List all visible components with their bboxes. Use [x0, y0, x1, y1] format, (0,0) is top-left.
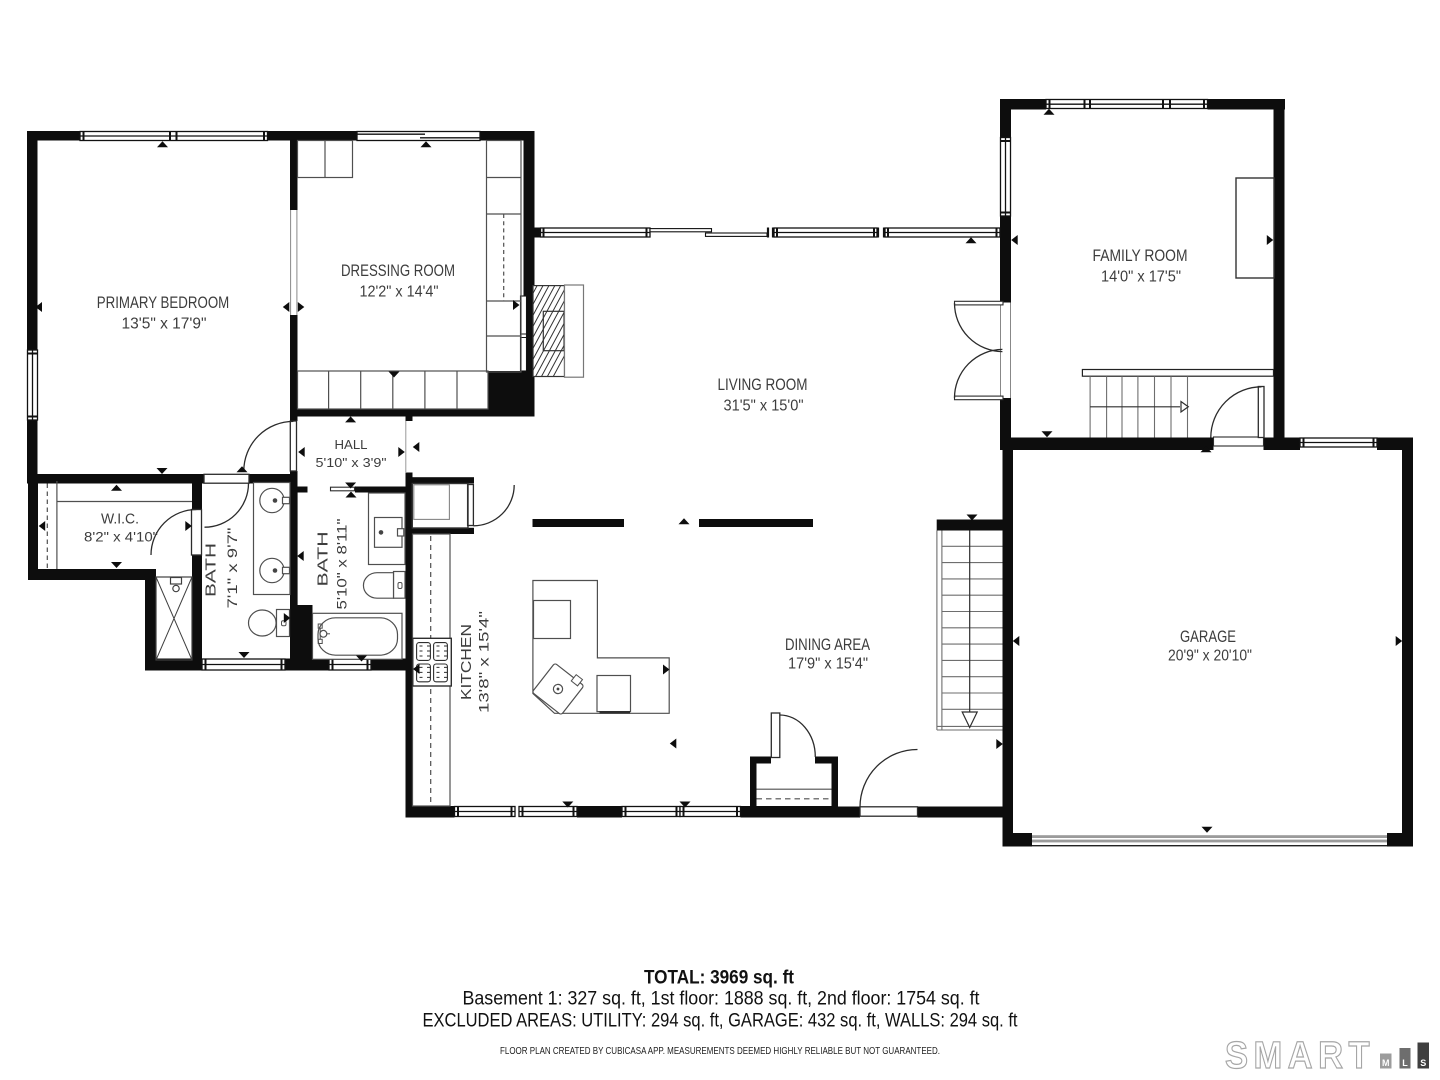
- svg-text:7'1" x 9'7": 7'1" x 9'7": [225, 527, 240, 608]
- svg-text:BATH: BATH: [204, 543, 220, 597]
- svg-text:31'5" x 15'0": 31'5" x 15'0": [724, 398, 804, 415]
- svg-text:Basement 1: 327 sq. ft, 1st fl: Basement 1: 327 sq. ft, 1st floor: 1888 …: [463, 989, 981, 1010]
- svg-text:FAMILY ROOM: FAMILY ROOM: [1093, 247, 1188, 265]
- svg-text:LIVING ROOM: LIVING ROOM: [718, 376, 808, 394]
- svg-text:17'9" x 15'4": 17'9" x 15'4": [788, 656, 868, 673]
- svg-text:8'2" x 4'10": 8'2" x 4'10": [84, 530, 158, 545]
- svg-text:M: M: [1382, 1058, 1390, 1068]
- svg-text:EXCLUDED AREAS: UTILITY: 294 s: EXCLUDED AREAS: UTILITY: 294 sq. ft, GAR…: [423, 1011, 1019, 1032]
- svg-text:BATH: BATH: [316, 532, 332, 587]
- svg-text:13'8" x 15'4": 13'8" x 15'4": [477, 611, 492, 713]
- svg-text:FLOOR PLAN CREATED BY CUBICASA: FLOOR PLAN CREATED BY CUBICASA APP. MEAS…: [500, 1045, 940, 1057]
- svg-text:5'10" x 8'11": 5'10" x 8'11": [335, 518, 350, 609]
- svg-text:PRIMARY BEDROOM: PRIMARY BEDROOM: [97, 294, 230, 312]
- svg-text:5'10" x 3'9": 5'10" x 3'9": [316, 456, 387, 470]
- svg-text:TOTAL: 3969 sq. ft: TOTAL: 3969 sq. ft: [644, 967, 794, 989]
- svg-text:13'5" x 17'9": 13'5" x 17'9": [122, 316, 207, 333]
- svg-text:SMART: SMART: [1225, 1035, 1375, 1077]
- svg-text:GARAGE: GARAGE: [1180, 628, 1236, 646]
- svg-text:S: S: [1420, 1058, 1426, 1068]
- svg-text:KITCHEN: KITCHEN: [459, 624, 475, 700]
- svg-text:L: L: [1402, 1058, 1408, 1068]
- svg-text:12'2" x 14'4": 12'2" x 14'4": [360, 284, 439, 301]
- svg-text:14'0" x 17'5": 14'0" x 17'5": [1101, 269, 1181, 286]
- svg-text:W.I.C.: W.I.C.: [101, 512, 139, 528]
- svg-text:HALL: HALL: [335, 438, 368, 452]
- svg-text:20'9" x 20'10": 20'9" x 20'10": [1168, 648, 1252, 665]
- svg-text:DINING AREA: DINING AREA: [785, 636, 870, 654]
- svg-text:DRESSING ROOM: DRESSING ROOM: [341, 262, 455, 280]
